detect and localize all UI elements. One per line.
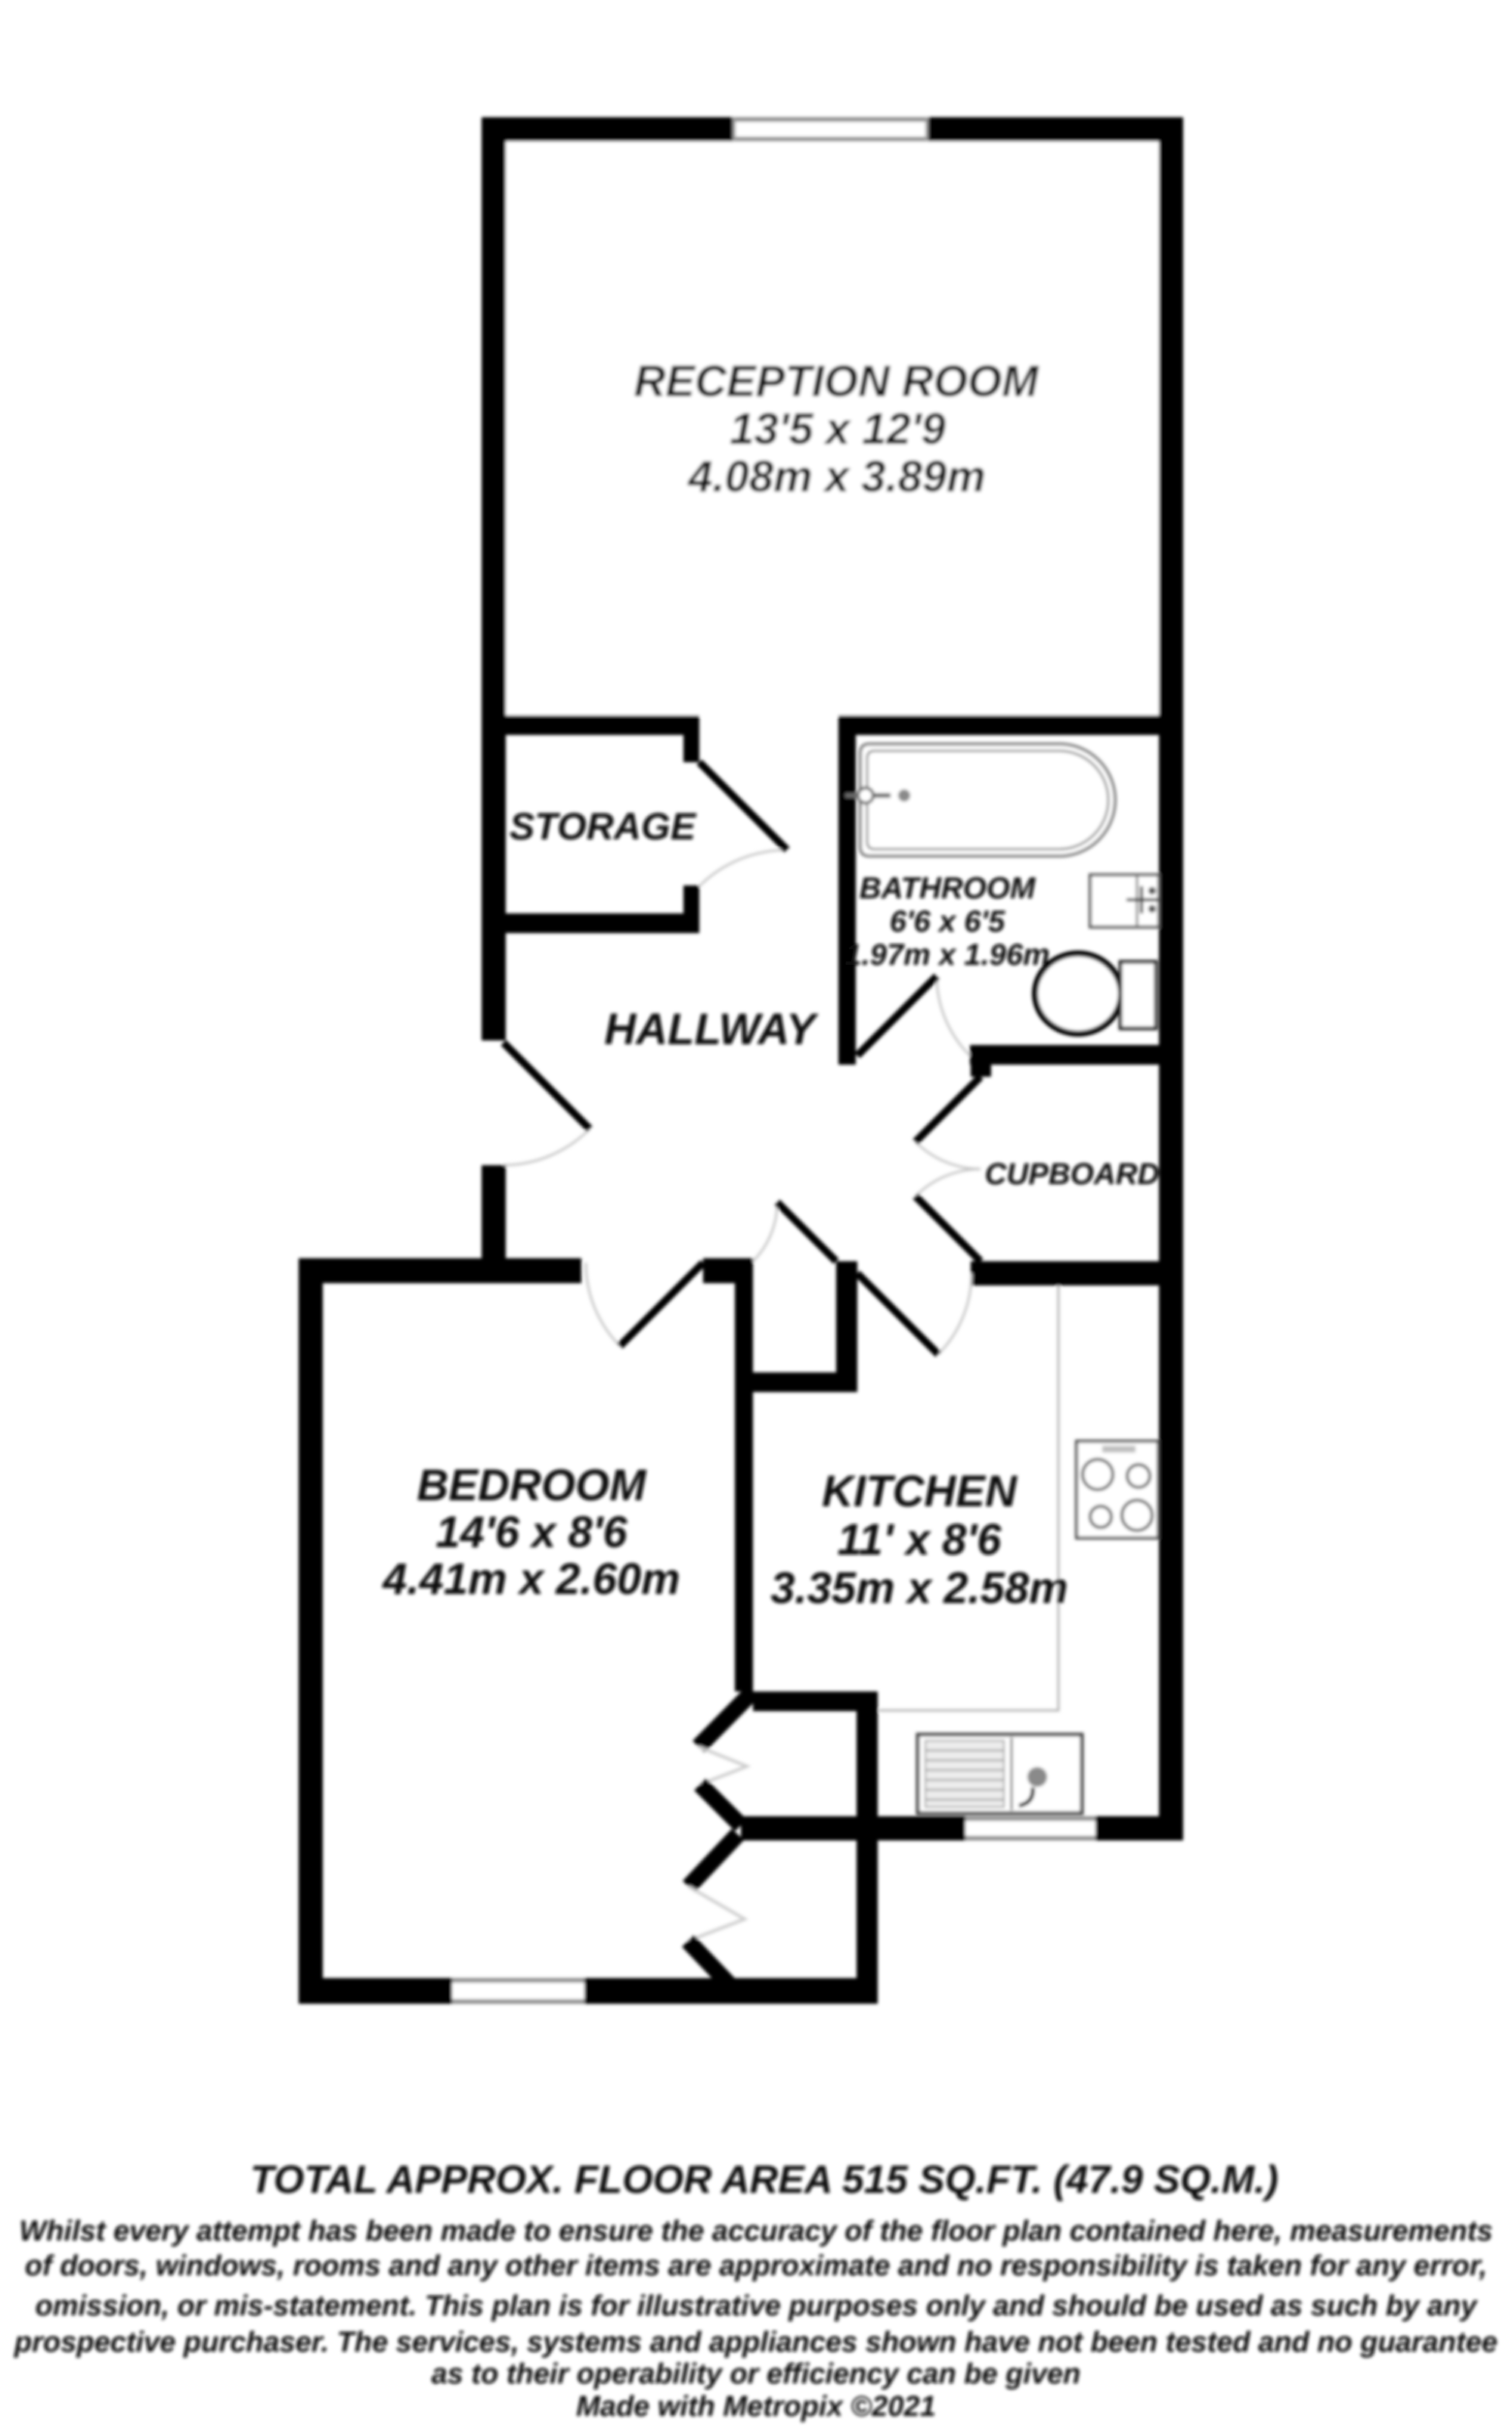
svg-text:of doors, windows, rooms and a: of doors, windows, rooms and any other i… bbox=[25, 2250, 1487, 2282]
svg-text:HALLWAY: HALLWAY bbox=[604, 1005, 820, 1054]
svg-text:KITCHEN: KITCHEN bbox=[822, 1467, 1018, 1516]
svg-text:14'6 x 8'6: 14'6 x 8'6 bbox=[435, 1508, 627, 1557]
svg-text:1.97m x 1.96m: 1.97m x 1.96m bbox=[844, 938, 1049, 972]
svg-text:Made with Metropix ©2021: Made with Metropix ©2021 bbox=[576, 2391, 936, 2423]
svg-text:4.08m x 3.89m: 4.08m x 3.89m bbox=[687, 452, 985, 501]
svg-text:6'6 x 6'5: 6'6 x 6'5 bbox=[890, 905, 1005, 938]
svg-text:BEDROOM: BEDROOM bbox=[417, 1461, 648, 1510]
svg-text:4.41m x 2.60m: 4.41m x 2.60m bbox=[382, 1555, 680, 1604]
svg-text:prospective purchaser. The ser: prospective purchaser. The services, sys… bbox=[14, 2327, 1498, 2358]
svg-text:BATHROOM: BATHROOM bbox=[860, 872, 1036, 905]
svg-text:Whilst every attempt has been: Whilst every attempt has been made to en… bbox=[19, 2215, 1492, 2247]
svg-text:as to their operability or eff: as to their operability or efficiency ca… bbox=[432, 2358, 1081, 2390]
svg-text:13'5 x 12'9: 13'5 x 12'9 bbox=[730, 405, 946, 454]
svg-text:STORAGE: STORAGE bbox=[510, 805, 697, 848]
svg-text:3.35m x 2.58m: 3.35m x 2.58m bbox=[770, 1564, 1067, 1613]
svg-text:TOTAL APPROX. FLOOR AREA 515 S: TOTAL APPROX. FLOOR AREA 515 SQ.FT. (47.… bbox=[250, 2158, 1278, 2202]
svg-text:omission, or mis-statement. Th: omission, or mis-statement. This plan is… bbox=[36, 2290, 1479, 2322]
svg-text:CUPBOARD: CUPBOARD bbox=[984, 1158, 1159, 1191]
svg-text:RECEPTION ROOM: RECEPTION ROOM bbox=[634, 357, 1040, 406]
svg-text:11' x 8'6: 11' x 8'6 bbox=[838, 1515, 1002, 1564]
